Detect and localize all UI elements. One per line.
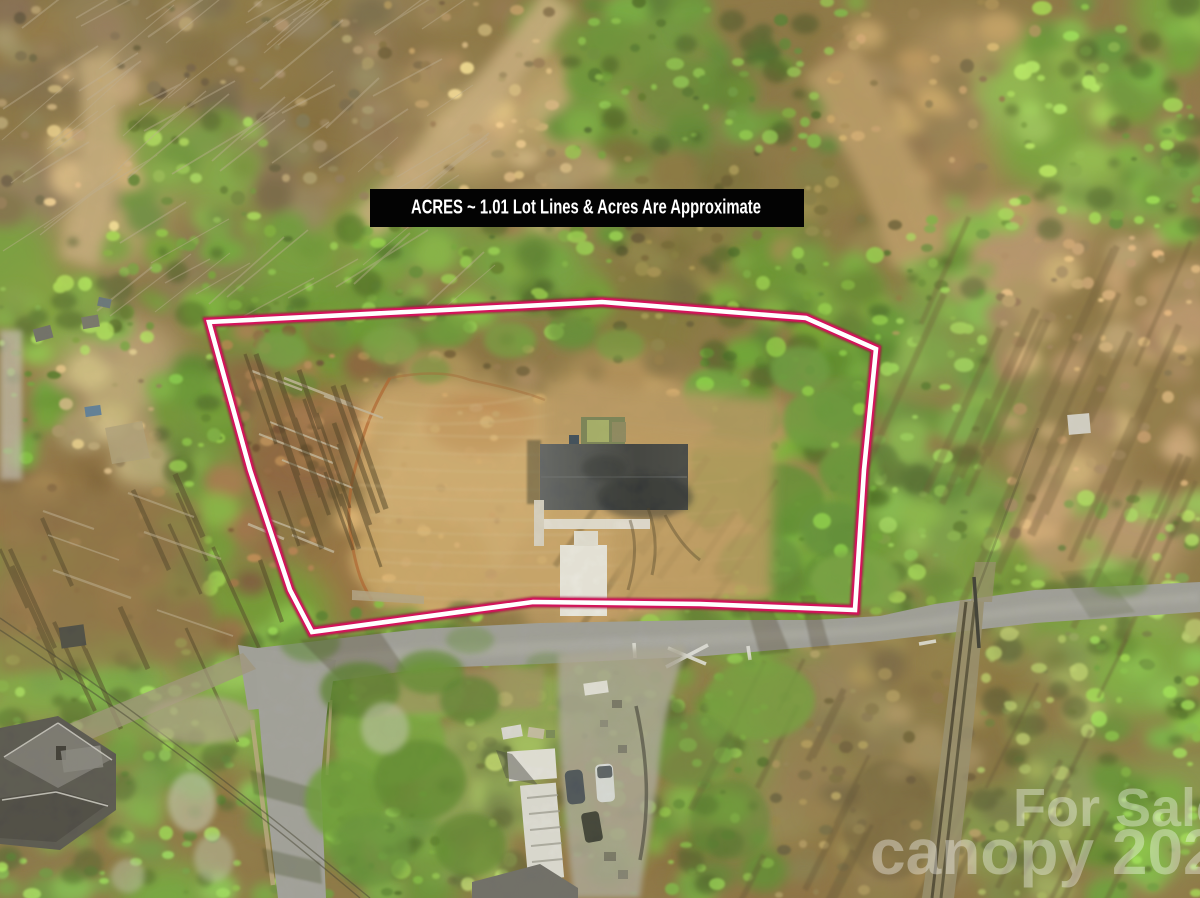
svg-text:ACRES ~ 1.01 Lot Lines & Acres: ACRES ~ 1.01 Lot Lines & Acres Are Appro… — [411, 197, 761, 219]
svg-text:canopy 2023: canopy 2023 — [870, 816, 1200, 888]
